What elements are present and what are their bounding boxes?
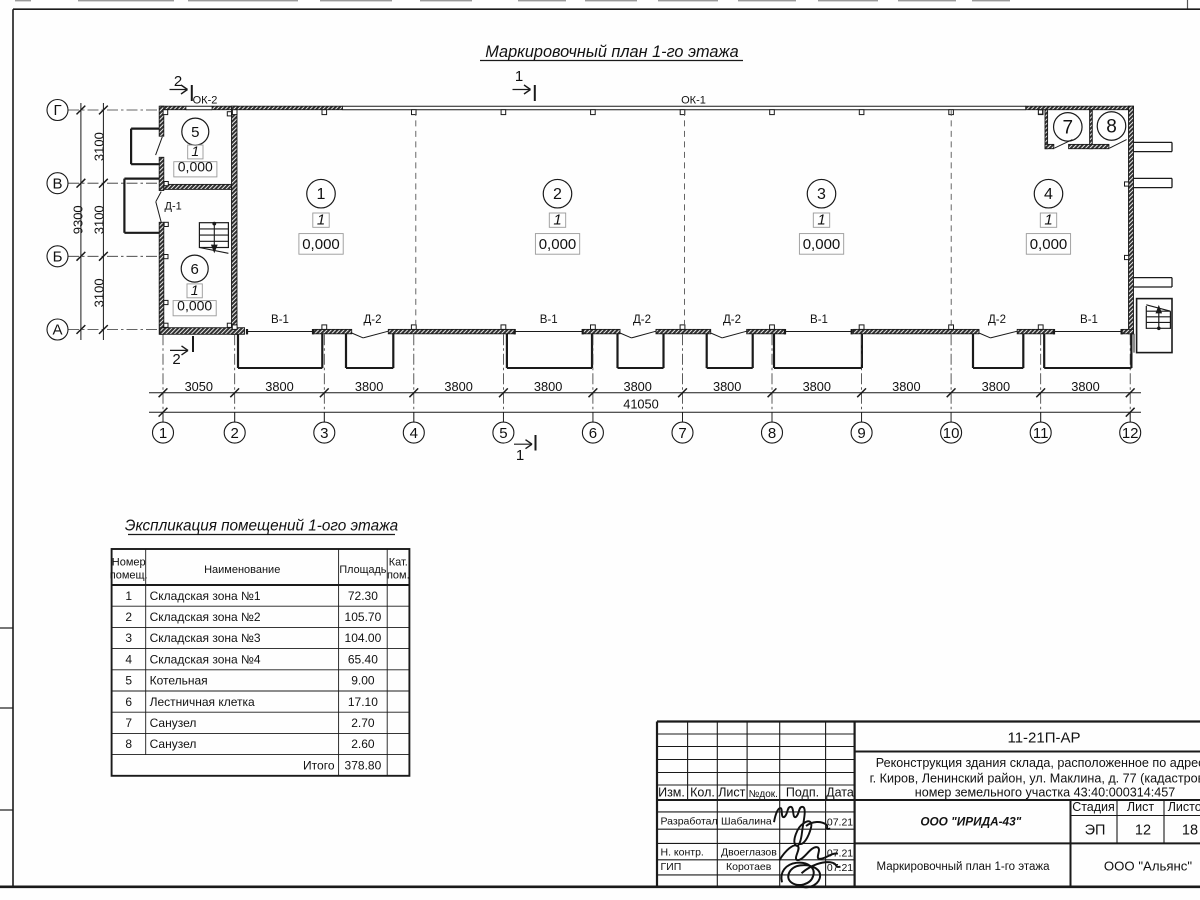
svg-text:1: 1 [317,211,325,228]
svg-text:Котельная: Котельная [150,674,208,688]
svg-text:8: 8 [125,737,132,751]
svg-text:1: 1 [1044,211,1052,228]
svg-text:4: 4 [1044,186,1053,203]
svg-text:12: 12 [1122,425,1139,442]
svg-text:0,000: 0,000 [539,236,577,253]
svg-text:№док.: №док. [749,789,778,800]
svg-text:0,000: 0,000 [803,236,841,253]
svg-text:5: 5 [191,124,199,141]
svg-text:Листов: Листов [1168,800,1200,814]
svg-text:3100: 3100 [92,132,107,161]
svg-text:Реконструкция здания склада, р: Реконструкция здания склада, расположенн… [876,756,1200,770]
svg-text:Д-2: Д-2 [723,314,741,326]
svg-text:2: 2 [125,610,132,624]
svg-text:9.00: 9.00 [351,674,375,688]
svg-text:Итого: Итого [303,758,335,772]
svg-text:Д-2: Д-2 [633,314,651,326]
svg-text:4: 4 [410,425,418,442]
svg-text:17.10: 17.10 [348,695,378,709]
svg-text:Номер: Номер [112,557,146,569]
svg-text:2: 2 [553,186,562,203]
svg-text:5: 5 [125,674,132,688]
svg-text:0,000: 0,000 [1030,236,1068,253]
svg-text:Складская зона №4: Складская зона №4 [150,652,261,666]
svg-text:Стадия: Стадия [1072,800,1115,814]
svg-text:2.70: 2.70 [351,716,375,730]
svg-text:3800: 3800 [534,379,562,394]
svg-text:2: 2 [174,73,182,90]
svg-text:3800: 3800 [355,379,383,394]
svg-text:3100: 3100 [92,278,107,307]
svg-text:7: 7 [678,425,686,442]
svg-text:5: 5 [499,425,507,442]
svg-text:6: 6 [191,261,199,278]
svg-text:18: 18 [1182,823,1198,839]
svg-text:Площадь: Площадь [339,564,386,576]
svg-text:номер земельного участка 43:40: номер земельного участка 43:40:000314:45… [915,785,1175,799]
svg-text:В-1: В-1 [271,314,289,326]
svg-text:1: 1 [515,68,523,85]
svg-text:3800: 3800 [803,379,831,394]
svg-text:11: 11 [1033,425,1049,442]
svg-text:ОК-1: ОК-1 [681,94,706,106]
svg-text:Д-2: Д-2 [988,314,1006,326]
svg-text:Шабалина: Шабалина [721,816,772,828]
svg-text:1: 1 [191,143,199,159]
svg-text:2: 2 [231,425,239,442]
svg-text:3: 3 [817,186,826,203]
svg-text:пом.: пом. [387,570,410,582]
svg-text:Лист: Лист [1127,800,1154,814]
svg-text:Подп.: Подп. [786,786,819,800]
svg-text:104.00: 104.00 [345,631,382,645]
svg-text:4: 4 [125,652,132,666]
svg-text:ОК-2: ОК-2 [193,94,218,106]
svg-text:В-1: В-1 [810,314,828,326]
svg-text:41050: 41050 [623,397,659,412]
svg-text:10: 10 [943,425,960,442]
svg-text:65.40: 65.40 [348,652,378,666]
svg-text:378.80: 378.80 [345,758,382,772]
svg-text:Лист: Лист [718,786,745,800]
svg-text:1: 1 [516,447,524,464]
svg-text:помещ.: помещ. [110,570,148,582]
svg-text:Дата: Дата [826,786,854,800]
svg-text:А: А [52,322,62,339]
svg-text:Б: Б [53,249,63,266]
svg-text:1: 1 [159,425,167,442]
svg-text:Маркировочный план 1-го этажа: Маркировочный план 1-го этажа [485,43,738,61]
svg-text:Складская зона №3: Складская зона №3 [150,631,261,645]
svg-text:105.70: 105.70 [345,610,382,624]
svg-text:1: 1 [317,186,326,203]
svg-text:3100: 3100 [92,205,107,234]
svg-text:Наименование: Наименование [204,564,280,576]
svg-text:Д-1: Д-1 [165,201,182,213]
svg-text:В-1: В-1 [1080,314,1098,326]
svg-text:6: 6 [589,425,597,442]
svg-text:3800: 3800 [1071,379,1099,394]
svg-text:0,000: 0,000 [178,159,213,175]
svg-text:7: 7 [125,716,132,730]
svg-text:Изм.: Изм. [658,786,685,800]
svg-text:0,000: 0,000 [302,236,340,253]
svg-text:Экспликация помещений 1-ого эт: Экспликация помещений 1-ого этажа [125,518,398,535]
svg-text:ГИП: ГИП [661,861,682,873]
svg-text:2: 2 [172,351,180,368]
svg-text:г. Киров, Ленинский район, ул.: г. Киров, Ленинский район, ул. Маклина, … [870,772,1200,786]
svg-text:Д-2: Д-2 [363,314,381,326]
svg-text:12: 12 [1135,823,1151,839]
svg-text:3: 3 [320,425,328,442]
svg-text:3050: 3050 [185,379,213,394]
svg-text:8: 8 [768,425,776,442]
svg-text:Н. контр.: Н. контр. [661,847,704,859]
svg-text:Коротаев: Коротаев [726,861,772,873]
svg-text:Санузел: Санузел [150,716,197,730]
svg-text:ООО "ИРИДА-43": ООО "ИРИДА-43" [920,815,1021,829]
svg-text:Складская зона №2: Складская зона №2 [150,610,261,624]
svg-text:3800: 3800 [444,379,472,394]
svg-text:3800: 3800 [892,379,920,394]
svg-text:Лестничная клетка: Лестничная клетка [150,695,255,709]
svg-text:2.60: 2.60 [351,737,375,751]
svg-text:3800: 3800 [623,379,651,394]
svg-text:8: 8 [1106,117,1117,138]
svg-text:9: 9 [857,425,865,442]
svg-text:ЭП: ЭП [1085,823,1106,839]
svg-text:1: 1 [191,282,199,298]
svg-text:Маркировочный план 1-го этажа: Маркировочный план 1-го этажа [877,861,1051,873]
svg-text:Разработал: Разработал [661,816,718,828]
svg-text:07.21: 07.21 [827,817,853,829]
svg-text:ООО "Альянс": ООО "Альянс" [1104,859,1192,874]
svg-text:1: 1 [553,211,561,228]
svg-text:В-1: В-1 [540,314,558,326]
svg-text:07.21: 07.21 [827,848,853,860]
svg-text:Складская зона №1: Складская зона №1 [150,589,261,603]
svg-text:07.21: 07.21 [827,862,853,874]
svg-text:3800: 3800 [982,379,1010,394]
svg-text:3: 3 [125,631,132,645]
svg-text:3800: 3800 [265,379,293,394]
svg-text:Кол.: Кол. [690,786,715,800]
svg-text:72.30: 72.30 [348,589,378,603]
svg-text:7: 7 [1063,118,1074,139]
svg-text:11-21П-АР: 11-21П-АР [1007,730,1080,747]
svg-text:1: 1 [125,589,132,603]
svg-text:3800: 3800 [713,379,741,394]
svg-text:9300: 9300 [71,205,86,234]
svg-text:В: В [52,175,62,192]
svg-text:0,000: 0,000 [177,298,212,314]
svg-text:Санузел: Санузел [150,737,197,751]
svg-text:1: 1 [817,211,825,228]
svg-text:Кат.: Кат. [389,557,408,569]
svg-text:Двоеглазов: Двоеглазов [721,847,777,859]
svg-text:6: 6 [125,695,132,709]
svg-text:Г: Г [53,102,61,119]
